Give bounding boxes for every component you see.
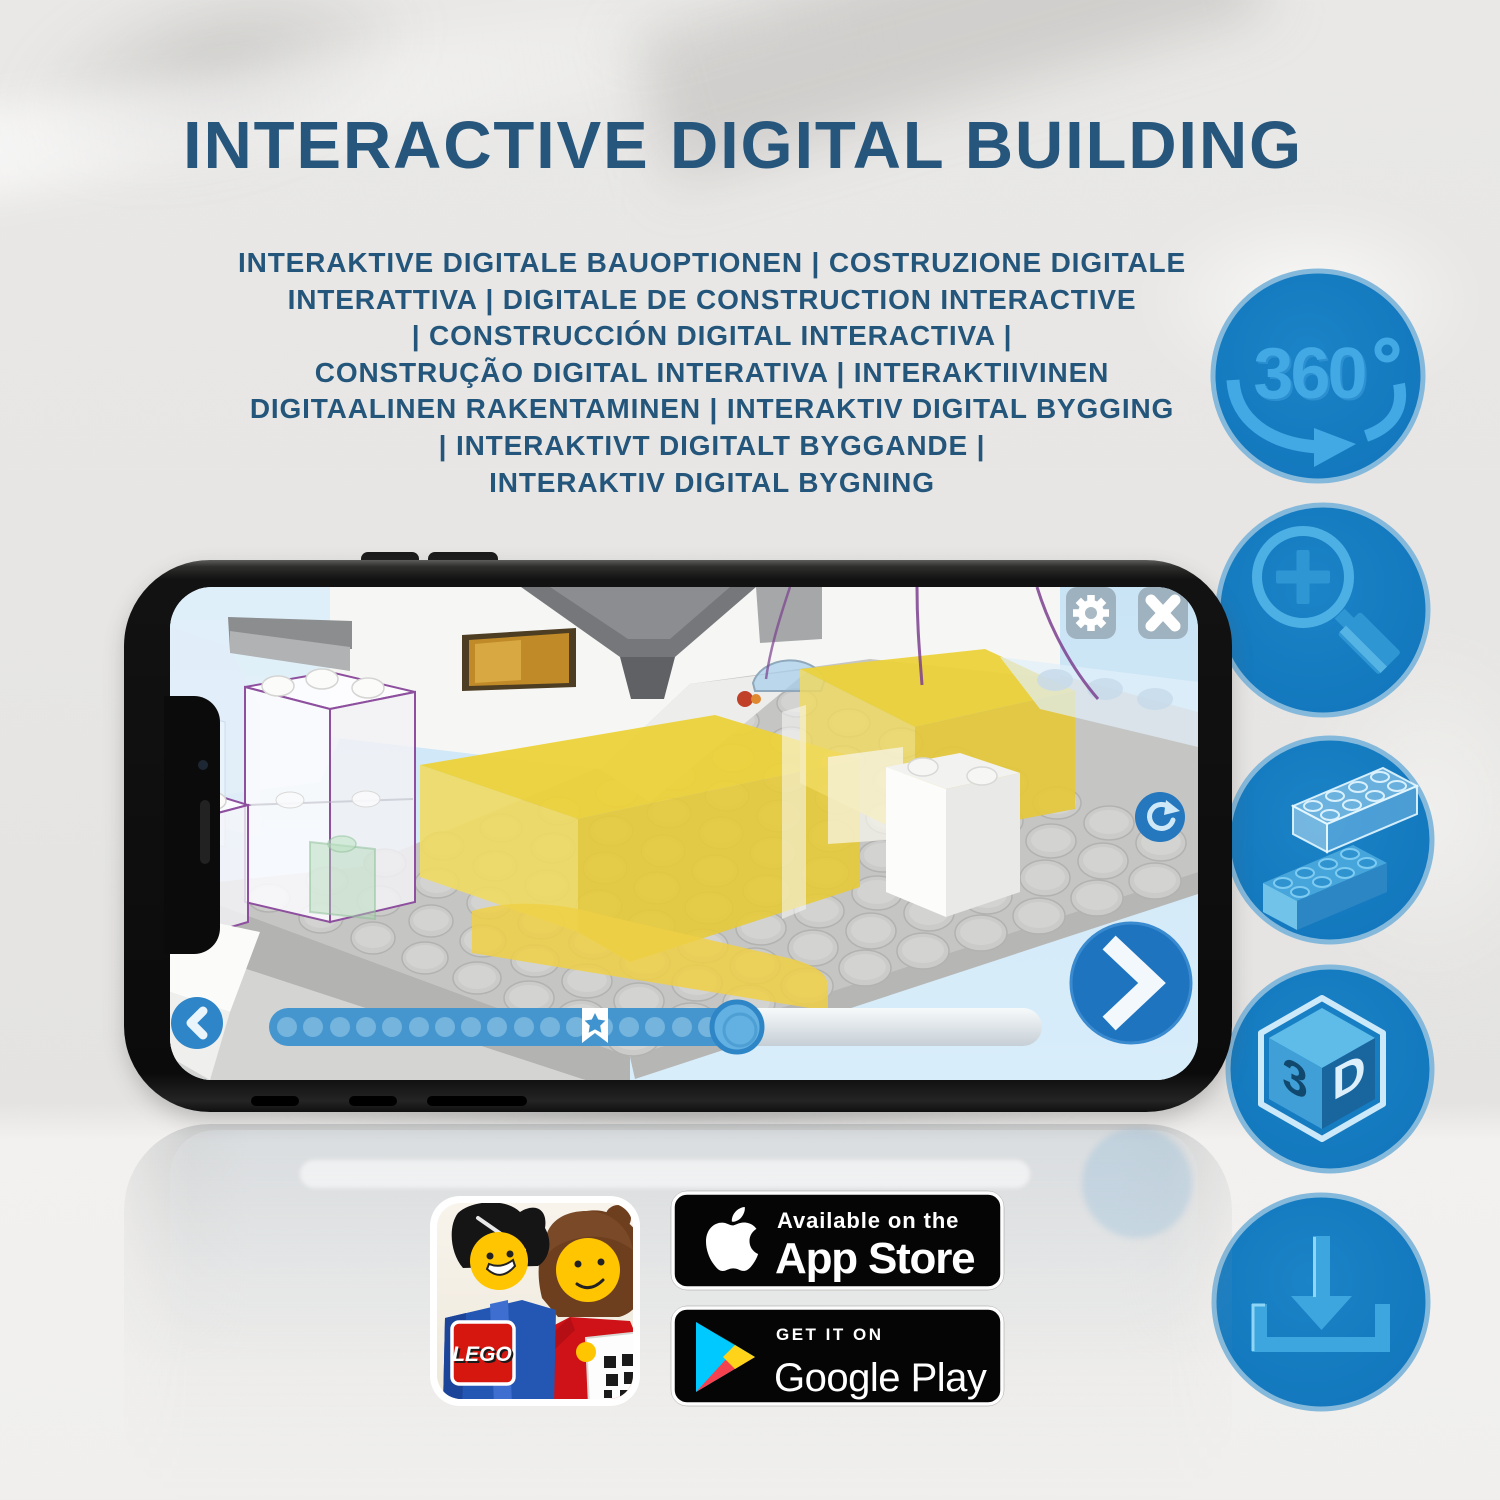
svg-text:Google Play: Google Play — [774, 1356, 987, 1400]
svg-text:GET IT ON: GET IT ON — [776, 1325, 884, 1344]
svg-text:App Store: App Store — [775, 1234, 974, 1283]
svg-text:LEGO: LEGO — [452, 1343, 512, 1366]
svg-text:Available on the: Available on the — [777, 1208, 959, 1233]
